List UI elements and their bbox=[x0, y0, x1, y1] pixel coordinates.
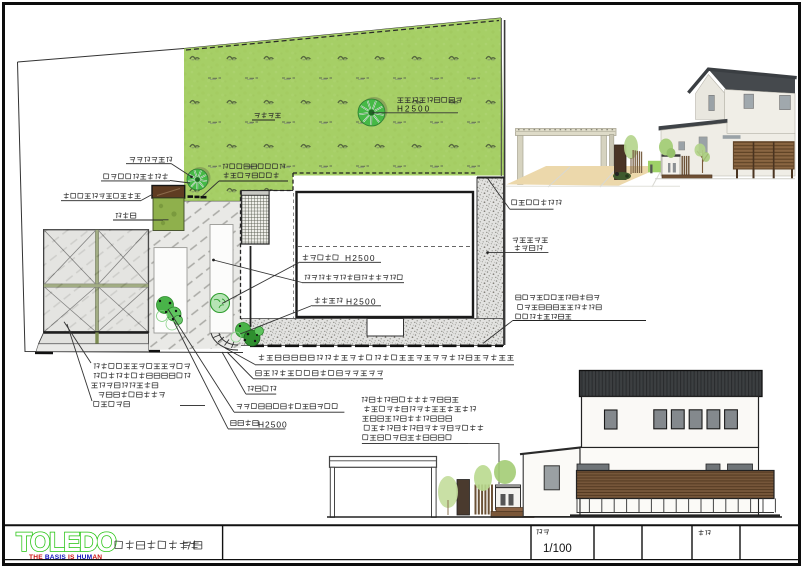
svg-text:TOLEDO: TOLEDO bbox=[16, 527, 116, 557]
svg-text:THE BASIS IS HUMAN: THE BASIS IS HUMAN bbox=[29, 554, 102, 561]
svg-text:1/100: 1/100 bbox=[543, 543, 572, 555]
svg-text:H2500: H2500 bbox=[345, 253, 376, 263]
svg-text:H2500: H2500 bbox=[258, 420, 288, 430]
svg-text:H2500: H2500 bbox=[346, 297, 377, 307]
svg-text:H2500: H2500 bbox=[397, 104, 431, 113]
